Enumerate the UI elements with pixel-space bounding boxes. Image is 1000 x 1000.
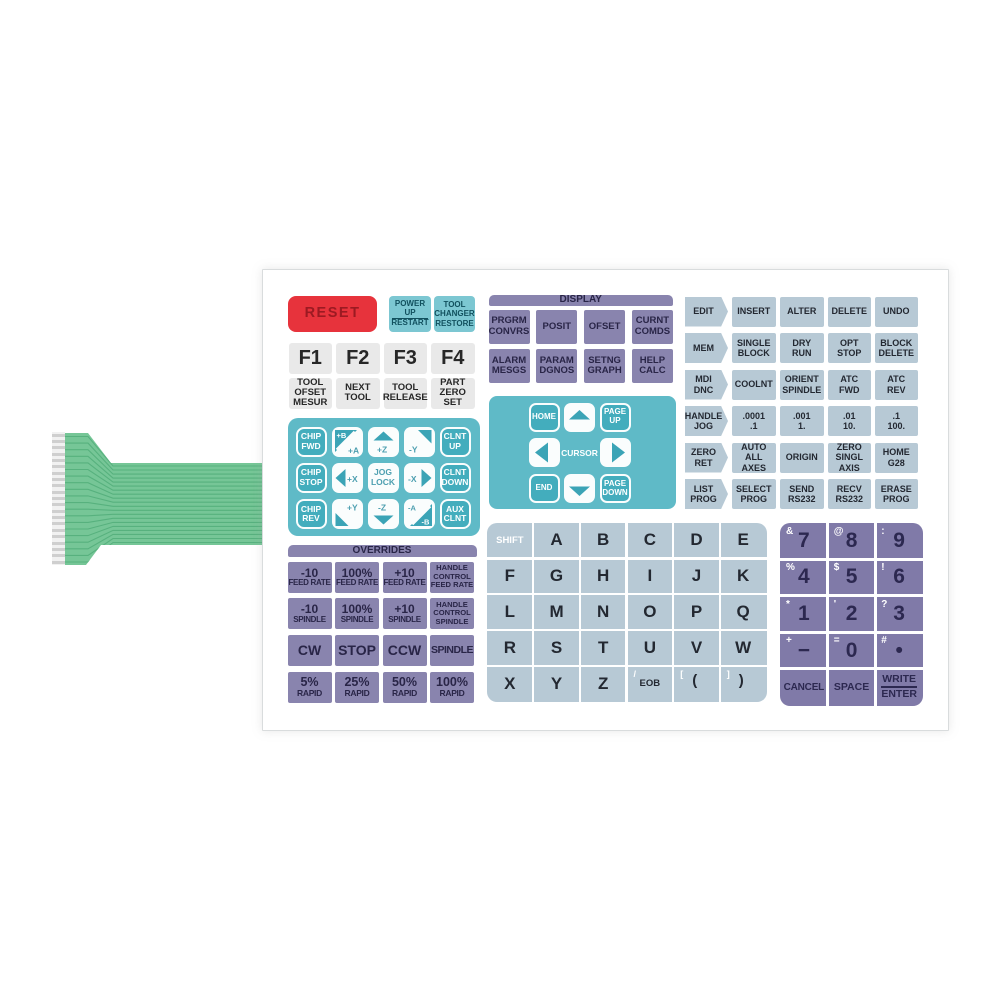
svg-text:-Y: -Y: [409, 444, 418, 454]
svg-text:+A: +A: [348, 445, 359, 455]
svg-text:+X: +X: [347, 474, 358, 484]
svg-text:+Z: +Z: [377, 444, 387, 454]
svg-text:+B: +B: [336, 431, 346, 440]
svg-text:+Y: +Y: [347, 502, 358, 512]
svg-text:-B: -B: [421, 517, 429, 526]
svg-text:-X: -X: [408, 474, 417, 484]
svg-text:-A: -A: [408, 503, 416, 512]
svg-text:-Z: -Z: [378, 502, 386, 512]
